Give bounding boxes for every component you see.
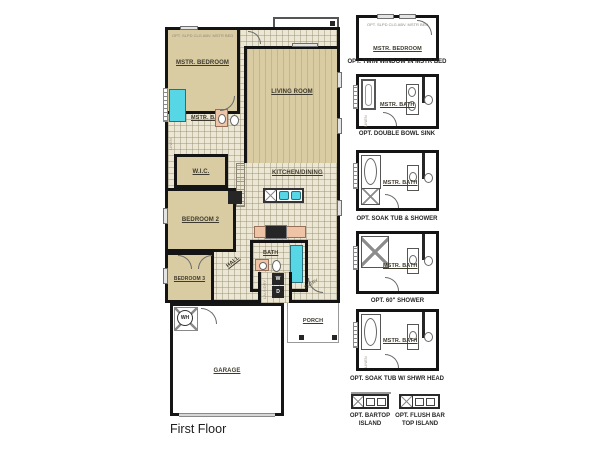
bath-vanity <box>255 259 269 271</box>
garage: WH GARAGE <box>170 303 284 416</box>
island-cabinet <box>353 396 364 407</box>
window <box>163 268 168 284</box>
toilet <box>424 332 433 342</box>
tub-basin <box>365 84 372 106</box>
island-sink-2 <box>291 191 301 200</box>
linen-label: LINEN <box>364 356 368 368</box>
mstr-tub <box>169 89 186 122</box>
room-wic: W.I.C. <box>174 154 228 188</box>
floor-plan-page: COVERED PATIO OPT. SLPD CLG ABV. MSTR BE… <box>0 0 600 450</box>
option-soak-tub-shwr-head-diagram: LINEN MSTR. BATH <box>356 309 439 371</box>
window <box>399 14 416 19</box>
option-caption: OPT. BARTOP ISLAND <box>341 413 399 429</box>
island-sink-1 <box>415 398 424 406</box>
tub-window <box>163 88 168 122</box>
option-room-label: MSTR. BATH <box>383 181 418 187</box>
living-room-label: LIVING ROOM <box>271 89 312 95</box>
soak-tub-frame <box>361 155 381 189</box>
house-outline: OPT. SLPD CLG ABV. MSTR BED MSTR. BEDROO… <box>165 27 340 303</box>
option-twin-window-diagram: OPT. SLPD CLG ABV. MSTR BED MSTR. BEDROO… <box>356 15 439 61</box>
door-swing <box>385 277 399 291</box>
toilet <box>424 95 433 105</box>
soak-tub-frame <box>361 314 381 350</box>
tub-window <box>353 322 358 348</box>
linen-label: LINEN <box>169 138 173 150</box>
room-living: LIVING ROOM <box>244 46 337 163</box>
wic-label: W.I.C. <box>193 169 210 175</box>
wall-stub <box>422 234 425 260</box>
porch-label: PORCH <box>303 319 323 325</box>
option-caption: OPT. SOAK TUB & SHOWER <box>352 216 442 224</box>
window <box>180 26 198 30</box>
toilet <box>424 173 433 183</box>
window <box>337 72 342 88</box>
option-room-label: MSTR. BATH <box>383 339 418 345</box>
island-sink-1 <box>366 398 375 406</box>
soak-tub <box>364 158 377 185</box>
mstr-bath-toilet <box>230 115 239 126</box>
patio-door <box>292 43 318 47</box>
door-swing <box>385 354 399 368</box>
door-swing <box>385 194 399 208</box>
plan-title: First Floor <box>170 422 226 436</box>
bedroom-2-label: BEDROOM 2 <box>182 217 219 223</box>
option-bartop-island-diagram <box>351 394 389 409</box>
shower <box>361 188 380 205</box>
window <box>377 14 394 19</box>
option-60-shower-diagram: MSTR. BATH <box>356 231 439 294</box>
option-soak-tub-shower-diagram: MSTR. BATH <box>356 150 439 211</box>
tub-window <box>353 85 358 109</box>
bartop-lip <box>351 392 391 394</box>
double-sink-counter <box>406 84 419 115</box>
sink-bowl <box>218 114 226 124</box>
porch-post <box>332 335 337 340</box>
tub-window <box>353 163 358 189</box>
room-laundry: LAUNDRY W D <box>258 272 292 303</box>
porch-post <box>299 335 304 340</box>
option-caption: OPT. 60" SHOWER <box>356 298 439 306</box>
island-sink-2 <box>426 398 435 406</box>
window <box>337 200 342 216</box>
option-caption: OPT. TWIN WINDOW IN MSTR BED <box>347 59 447 67</box>
stove <box>265 225 287 239</box>
sink-counter <box>407 324 419 350</box>
option-caption: OPT. SOAK TUB W/ SHWR HEAD <box>349 376 445 384</box>
hall-label: HALL <box>226 256 241 270</box>
window <box>337 118 342 134</box>
sink-bowl <box>259 262 267 270</box>
bath-label: BATH <box>263 251 278 257</box>
tub-window <box>353 246 358 270</box>
option-room-label: MSTR. BEDROOM <box>373 47 422 53</box>
window <box>163 208 168 224</box>
porch: PORCH <box>287 303 339 343</box>
option-caption: OPT. FLUSH BAR TOP ISLAND <box>392 413 448 429</box>
island-cabinet <box>265 190 277 201</box>
option-double-bowl-sink-diagram: LINEN MSTR. BATH <box>356 74 439 129</box>
tub <box>361 79 376 110</box>
laundry-label: LAUNDRY <box>263 280 267 299</box>
patio-post <box>330 21 335 26</box>
island-sink-2 <box>377 398 386 406</box>
option-flush-bar-island-diagram <box>399 394 440 409</box>
garage-label: GARAGE <box>214 368 241 374</box>
sink-counter <box>407 248 419 274</box>
dryer: D <box>272 286 284 298</box>
linen-label: LINEN <box>364 115 368 127</box>
garage-door <box>179 413 275 417</box>
island-sink-1 <box>279 191 289 200</box>
door-swing <box>308 278 323 293</box>
option-room-label: MSTR. BATH <box>383 264 418 270</box>
soak-tub <box>364 318 377 346</box>
door-swing <box>383 112 397 126</box>
ceiling-note: OPT. SLPD CLG ABV. MSTR BED <box>172 34 233 38</box>
door-swing <box>417 20 432 35</box>
bedroom-3-label: BEDROOM 3 <box>174 277 205 282</box>
room-bedroom-2: BEDROOM 2 <box>168 188 236 252</box>
door-swing <box>248 31 261 44</box>
bath-toilet <box>272 260 281 272</box>
washer: W <box>272 273 284 285</box>
mstr-bedroom-label: MSTR. BEDROOM <box>176 60 229 66</box>
island-cabinet <box>401 396 413 407</box>
kitchen-dining-label: KITCHEN/DINING <box>272 170 323 176</box>
water-heater: WH <box>177 310 193 326</box>
sink-counter <box>407 165 419 191</box>
option-room-label: MSTR. BATH <box>380 103 415 109</box>
fridge <box>228 191 242 204</box>
door-swing <box>201 308 217 324</box>
kitchen-island <box>263 188 304 203</box>
option-caption: OPT. DOUBLE BOWL SINK <box>352 131 442 139</box>
sink-bowl <box>408 87 416 97</box>
toilet <box>424 256 433 266</box>
mstr-bath-vanity <box>215 109 228 127</box>
